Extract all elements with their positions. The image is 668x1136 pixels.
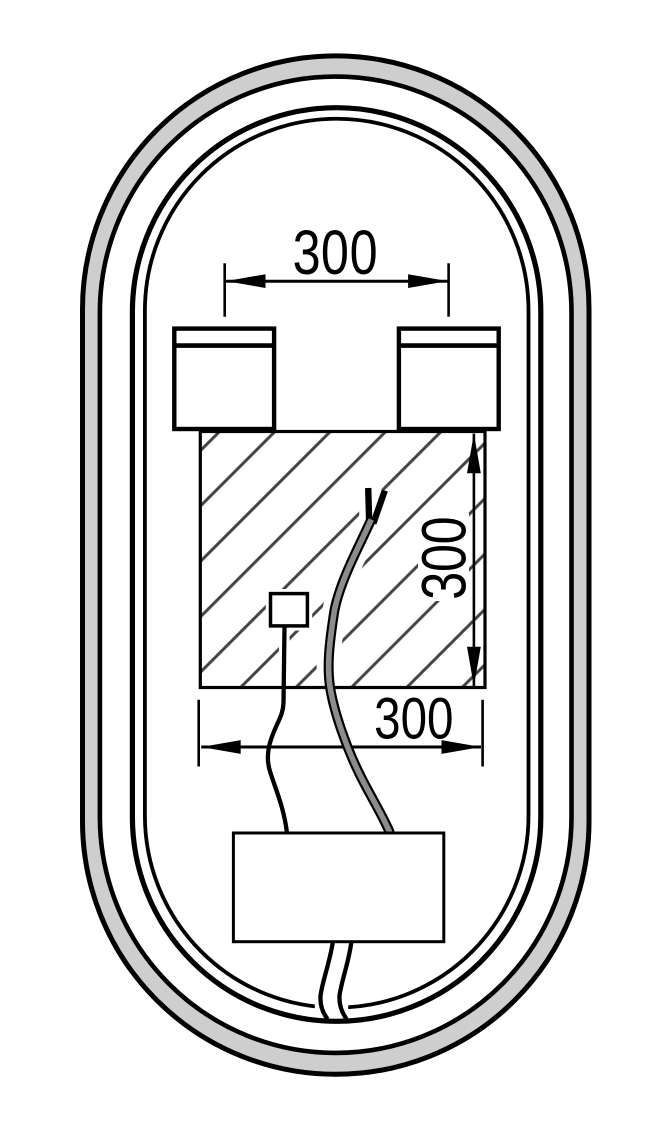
svg-text:3: 3 bbox=[293, 218, 321, 289]
svg-text:3: 3 bbox=[409, 572, 480, 600]
svg-text:3: 3 bbox=[374, 687, 400, 752]
svg-text:0: 0 bbox=[321, 218, 349, 289]
svg-text:0: 0 bbox=[401, 687, 427, 752]
svg-text:0: 0 bbox=[409, 544, 480, 572]
svg-text:0: 0 bbox=[427, 687, 453, 752]
svg-text:0: 0 bbox=[409, 516, 480, 544]
svg-text:0: 0 bbox=[350, 218, 378, 289]
